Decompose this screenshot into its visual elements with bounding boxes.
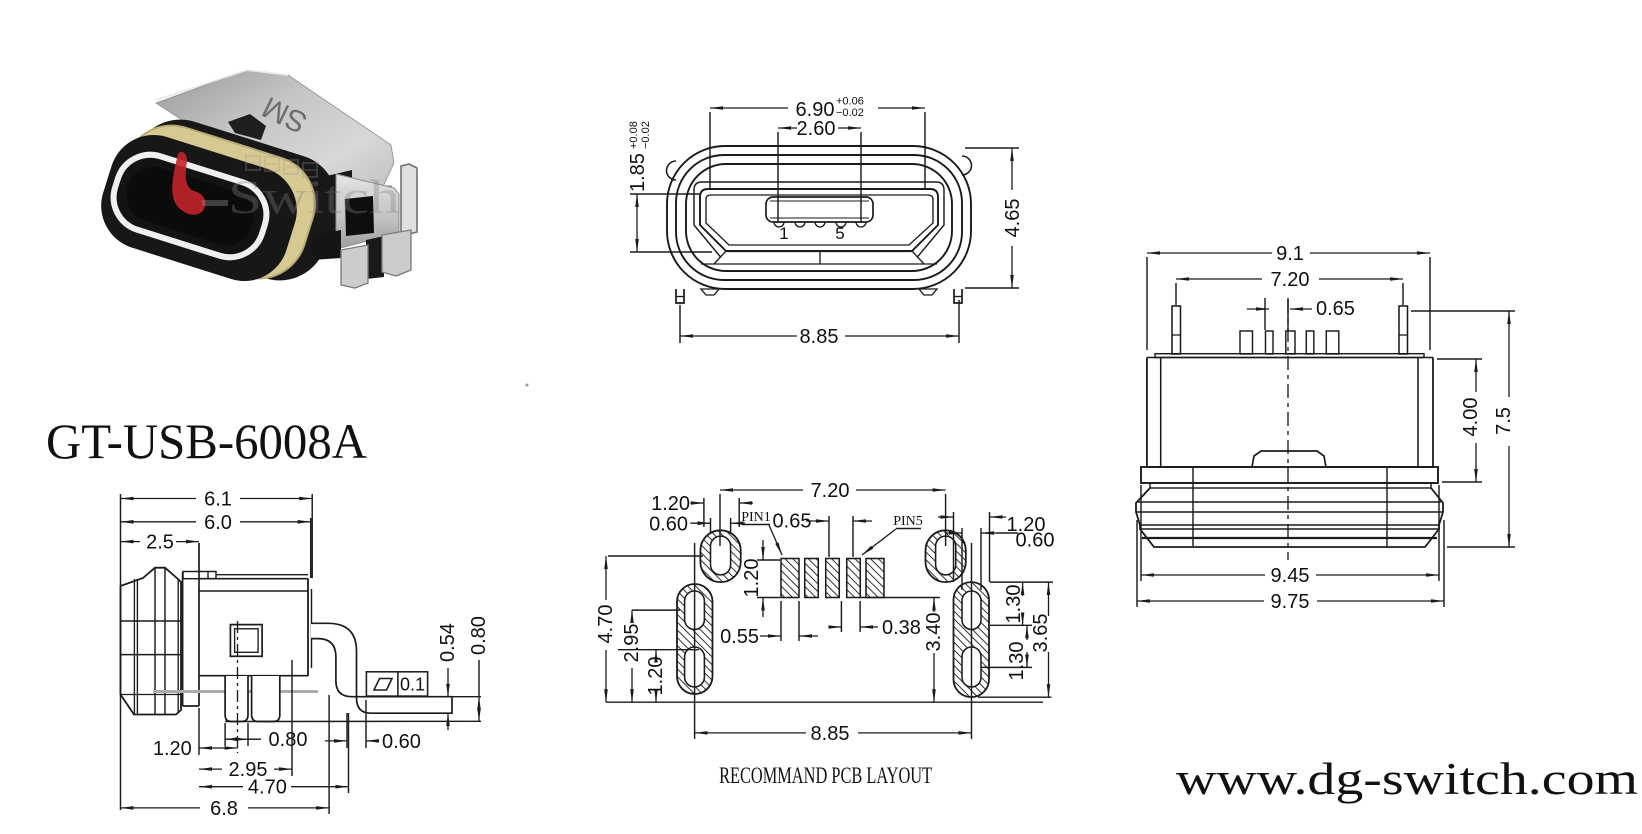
- svg-text:+0.06: +0.06: [836, 96, 864, 108]
- svg-text:1.20: 1.20: [741, 559, 763, 598]
- svg-text:0.1: 0.1: [400, 675, 425, 695]
- svg-text:1.30: 1.30: [1003, 585, 1025, 624]
- svg-text:0.60: 0.60: [649, 514, 688, 536]
- svg-text:0.80: 0.80: [269, 729, 308, 751]
- svg-text:RECOMMAND PCB LAYOUT: RECOMMAND PCB LAYOUT: [719, 763, 932, 788]
- svg-text:0.65: 0.65: [773, 511, 812, 533]
- svg-text:1.30: 1.30: [1006, 642, 1028, 681]
- svg-text:PIN1: PIN1: [741, 510, 771, 525]
- svg-text:GT-USB-6008A: GT-USB-6008A: [46, 413, 367, 469]
- svg-text:8.85: 8.85: [800, 326, 839, 348]
- svg-text:Switch: Switch: [228, 171, 400, 224]
- svg-text:4.70: 4.70: [248, 777, 287, 799]
- svg-text:2.5: 2.5: [146, 532, 174, 554]
- svg-text:8.85: 8.85: [811, 723, 850, 745]
- svg-text:3.65: 3.65: [1030, 614, 1052, 653]
- svg-text:7.20: 7.20: [1271, 269, 1310, 291]
- svg-text:2.60: 2.60: [797, 118, 836, 140]
- svg-text:3.40: 3.40: [923, 613, 945, 652]
- svg-text:PIN5: PIN5: [893, 514, 923, 529]
- svg-text:0.38: 0.38: [882, 617, 921, 639]
- svg-text:9.45: 9.45: [1271, 565, 1310, 587]
- svg-text:9.1: 9.1: [1276, 243, 1304, 265]
- svg-text:4.70: 4.70: [595, 605, 617, 644]
- svg-text:+0.08: +0.08: [628, 121, 640, 149]
- svg-text:−0.02: −0.02: [640, 121, 652, 149]
- svg-text:4.65: 4.65: [1002, 199, 1024, 238]
- svg-text:7.20: 7.20: [811, 480, 850, 502]
- svg-text:1: 1: [779, 224, 788, 243]
- svg-text:1.20: 1.20: [645, 657, 667, 696]
- svg-text:0.55: 0.55: [720, 626, 759, 648]
- svg-text:0.60: 0.60: [382, 731, 421, 753]
- svg-text:6.1: 6.1: [204, 489, 232, 511]
- svg-text:0.60: 0.60: [1016, 530, 1055, 552]
- svg-text:0.80: 0.80: [468, 616, 490, 655]
- svg-text:1.20: 1.20: [153, 738, 192, 760]
- svg-text:2.95: 2.95: [621, 624, 643, 663]
- svg-text:0.65: 0.65: [1316, 298, 1355, 320]
- svg-text:1.85: 1.85: [627, 153, 649, 192]
- svg-text:6.8: 6.8: [210, 798, 238, 820]
- svg-text:9.75: 9.75: [1271, 591, 1310, 613]
- svg-text:5: 5: [835, 224, 844, 243]
- svg-text:7.5: 7.5: [1493, 407, 1515, 435]
- svg-text:www.dg-switch.com: www.dg-switch.com: [1176, 754, 1638, 804]
- svg-text:4.00: 4.00: [1460, 398, 1482, 437]
- svg-text:−0.02: −0.02: [836, 107, 864, 119]
- svg-text:6.0: 6.0: [204, 512, 232, 534]
- svg-text:1.20: 1.20: [651, 493, 690, 515]
- svg-text:0.54: 0.54: [437, 623, 459, 662]
